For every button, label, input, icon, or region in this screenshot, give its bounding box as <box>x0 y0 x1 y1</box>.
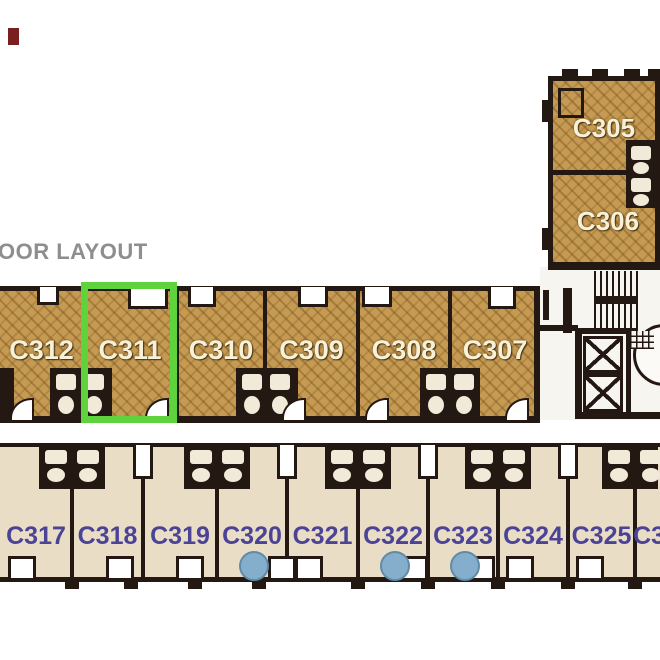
elevator-shaft <box>583 336 623 373</box>
wall-tab <box>65 582 79 589</box>
fixture-cell <box>47 468 65 482</box>
fixture-cell <box>633 162 649 174</box>
entry-alcove <box>298 287 328 307</box>
status-marker <box>450 551 480 581</box>
fixture-cell <box>192 468 210 482</box>
wall-tab <box>252 582 266 589</box>
bathroom-fixtures <box>602 445 658 489</box>
fixture-cell <box>331 450 353 464</box>
status-marker <box>239 551 269 581</box>
unit-label: C306 <box>563 206 653 234</box>
core-wall <box>575 412 660 419</box>
fixture-cell <box>242 374 262 390</box>
page-title: OOR LAYOUT <box>0 239 148 265</box>
unit-label: C308 <box>359 335 449 365</box>
unit-label: C326 <box>618 522 660 550</box>
entry-alcove <box>268 556 296 578</box>
entry-alcove <box>506 556 534 578</box>
fixture-cell <box>222 450 244 464</box>
entry-alcove <box>488 287 516 309</box>
fixture-cell <box>224 468 242 482</box>
fixture-cell <box>642 468 660 482</box>
core-wall <box>548 264 660 270</box>
wall-tab <box>491 582 505 589</box>
fixture-cell <box>473 468 491 482</box>
unit-label: C310 <box>176 335 266 365</box>
wall-tab <box>562 69 578 77</box>
fixture-cell <box>56 374 76 390</box>
entry-alcove <box>362 287 392 307</box>
fixture-cell <box>270 374 290 390</box>
unit-label: C312 <box>0 335 87 365</box>
fixture-cell <box>631 146 651 160</box>
fixture-cell <box>608 450 630 464</box>
entry-alcove <box>295 556 323 578</box>
unit-label: C307 <box>450 335 540 365</box>
wall-tab <box>351 582 365 589</box>
bathroom-fixtures <box>420 368 480 420</box>
bathroom-fixtures <box>39 445 105 489</box>
entry-alcove <box>176 556 204 578</box>
entry-alcove <box>106 556 134 578</box>
floor-plan: OOR LAYOUT C305C306C312C311C310C309C308C… <box>0 0 660 660</box>
fixture-cell <box>79 468 97 482</box>
fixture-cell <box>503 450 525 464</box>
fixture-cell <box>426 374 446 390</box>
wall-tab <box>124 582 138 589</box>
fixture-cell <box>365 468 383 482</box>
wall-tab <box>542 100 550 122</box>
fixture-cell <box>640 450 660 464</box>
fixture-cell <box>610 468 628 482</box>
entry-alcove <box>8 556 36 578</box>
stair-landing <box>594 296 638 304</box>
bathroom-fixtures <box>626 140 658 208</box>
wall-tab <box>421 582 435 589</box>
wall-tab <box>542 228 550 250</box>
bathroom-fixtures <box>325 445 391 489</box>
core-wall <box>540 325 578 331</box>
core-wall <box>575 330 582 419</box>
wall-tab <box>648 69 660 77</box>
fixture-cell <box>333 468 351 482</box>
entry-alcove <box>576 556 604 578</box>
utility-alcove <box>133 445 153 479</box>
wall-tab <box>592 69 608 77</box>
unit-label: C305 <box>559 113 649 141</box>
fixture-cell <box>631 178 651 192</box>
fixture-cell <box>190 450 212 464</box>
fixture-cell <box>471 450 493 464</box>
core-wall <box>543 290 549 320</box>
fixture-cell <box>58 396 74 414</box>
entry-alcove <box>37 287 59 305</box>
fixture-cell <box>428 396 444 414</box>
fixture-cell <box>363 450 385 464</box>
fixture-cell <box>454 374 474 390</box>
fixture-cell <box>456 396 472 414</box>
wall-tab <box>188 582 202 589</box>
wall-tab <box>624 69 640 77</box>
fixture-cell <box>633 194 649 206</box>
entry-alcove <box>188 287 216 307</box>
fixture-cell <box>244 396 260 414</box>
grid-tile <box>630 331 654 349</box>
utility-alcove <box>418 445 438 479</box>
red-marker <box>8 28 19 45</box>
elevator-shaft <box>583 374 623 412</box>
bathroom-fixtures <box>465 445 531 489</box>
highlight-box-C311[interactable] <box>81 282 177 423</box>
wall-tab <box>561 582 575 589</box>
bathroom-fixtures <box>184 445 250 489</box>
fixture-cell <box>505 468 523 482</box>
utility-alcove <box>277 445 297 479</box>
wall-tab <box>628 582 642 589</box>
utility-alcove <box>558 445 578 479</box>
status-marker <box>380 551 410 581</box>
fixture-cell <box>77 450 99 464</box>
unit-label: C309 <box>267 335 357 365</box>
fixture-cell <box>45 450 67 464</box>
